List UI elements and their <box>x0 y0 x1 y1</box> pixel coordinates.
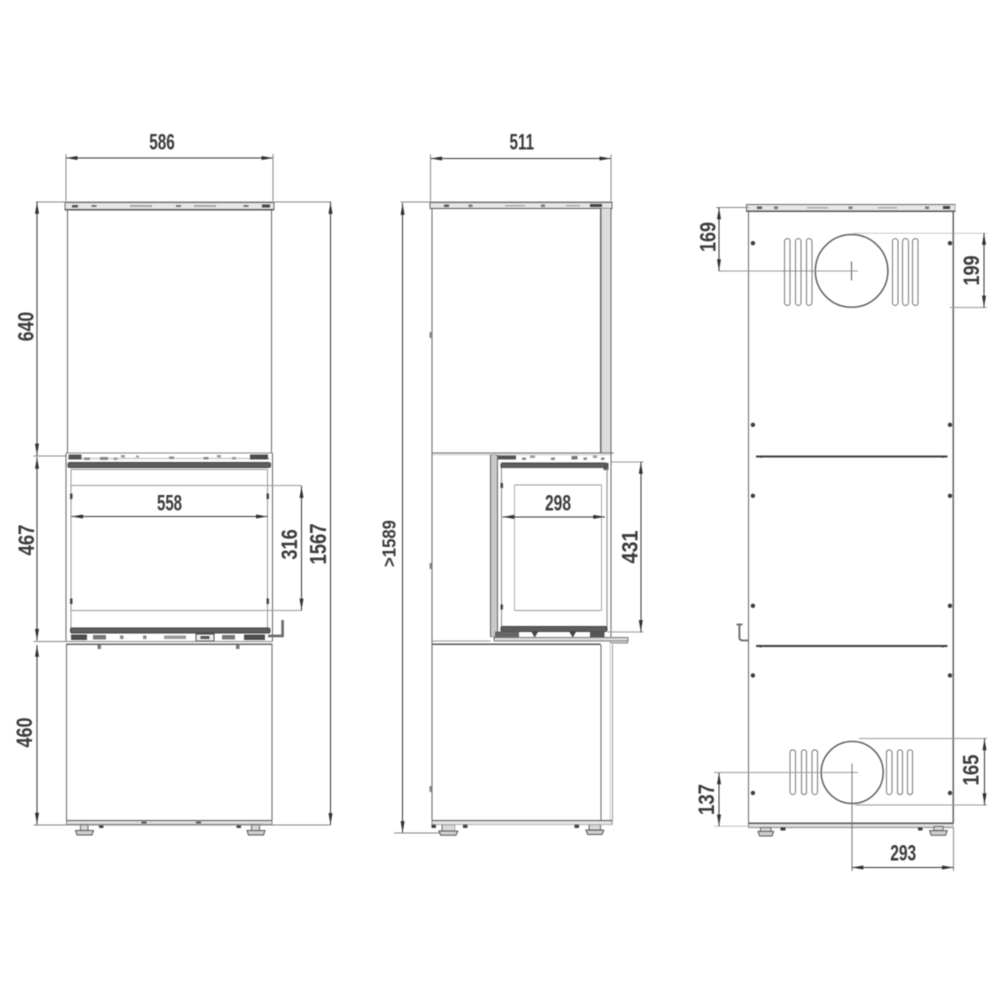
svg-text:165: 165 <box>959 755 984 786</box>
svg-text:511: 511 <box>510 130 535 155</box>
svg-text:293: 293 <box>890 841 916 866</box>
svg-text:558: 558 <box>157 491 182 516</box>
svg-text:1567: 1567 <box>305 524 331 565</box>
svg-text:316: 316 <box>277 529 302 560</box>
svg-text:460: 460 <box>12 718 37 748</box>
svg-text:>1589: >1589 <box>380 520 400 567</box>
svg-text:137: 137 <box>694 784 719 815</box>
svg-text:199: 199 <box>959 256 984 286</box>
svg-text:431: 431 <box>618 531 643 564</box>
svg-text:169: 169 <box>696 222 721 252</box>
svg-text:298: 298 <box>545 491 571 516</box>
svg-text:640: 640 <box>14 312 39 342</box>
svg-text:467: 467 <box>14 525 39 556</box>
svg-text:586: 586 <box>149 130 175 155</box>
